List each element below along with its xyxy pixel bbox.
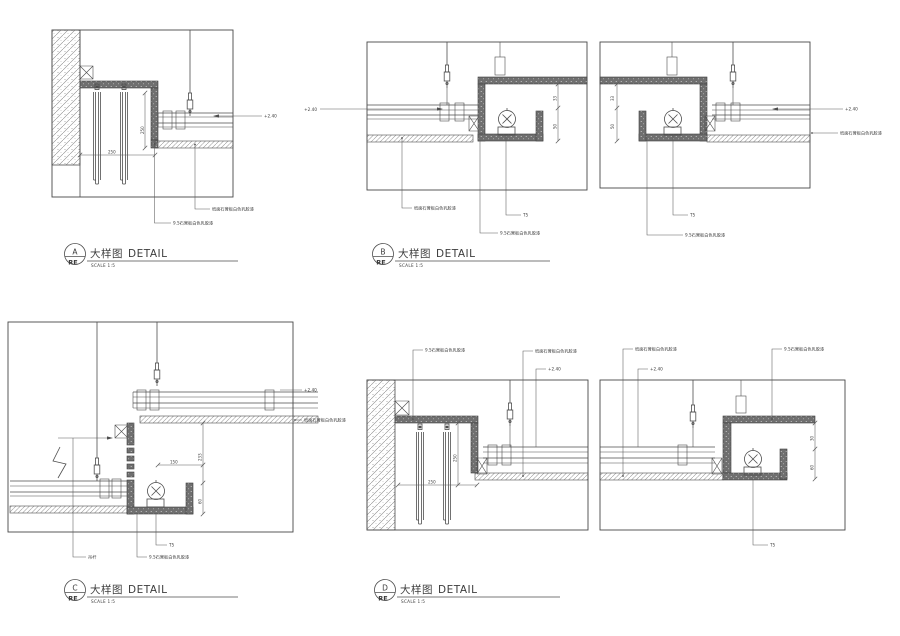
- callout-cove-board: 9.5石膏板白色乳胶漆: [685, 232, 725, 239]
- callout-level: +2.40: [650, 367, 663, 372]
- hanger-turnbuckle: [730, 62, 736, 88]
- curtain-track: [121, 84, 128, 184]
- callout-hanger-rod: 吊杆: [88, 554, 97, 561]
- hanger-turnbuckle: [154, 360, 160, 386]
- rail-clip: [137, 390, 146, 410]
- dim-lower: 60: [810, 464, 815, 470]
- detail-scale: SCALE 1:5: [401, 599, 425, 604]
- callout-level: +2.40: [264, 114, 277, 119]
- dim-upper: 30: [810, 435, 815, 441]
- rail-clip: [440, 103, 449, 121]
- detail-ref-label: RE: [376, 259, 385, 267]
- lamp-symbol: [499, 108, 516, 128]
- detail-title-en: DETAIL: [128, 584, 167, 596]
- callout-flat-board: 纸面石膏板白色乳胶漆: [212, 206, 254, 213]
- detail-ref-label: RE: [378, 595, 387, 603]
- callout-level: +2.40: [304, 107, 317, 112]
- detail-title-en: DETAIL: [436, 248, 475, 260]
- blocking-xbox: [395, 401, 409, 415]
- dim-horizontal: 250: [428, 480, 436, 485]
- leader-arrow: [107, 436, 113, 439]
- detail-title-cn: 大样图: [90, 583, 123, 596]
- callout-lamp: T5: [769, 543, 776, 548]
- rail-clip: [502, 445, 511, 465]
- cove-board: [600, 77, 707, 84]
- detail-title-en: DETAIL: [128, 248, 167, 260]
- detail-b-drawing: 33 50 +2.40 纸面石膏板白色乳胶漆 9.5石膏板白色乳胶漆 T5 33…: [304, 42, 882, 268]
- cove-bracket: [667, 57, 677, 75]
- detail-b-titleblock: B RE 大样图 DETAIL SCALE 1:5: [373, 244, 551, 269]
- cad-detail-sheet: +2.40 250 250 纸面石膏板白色乳胶漆 9.5石膏板白色乳胶漆 A R…: [0, 0, 900, 636]
- rail-clip: [176, 111, 185, 129]
- detail-a-drawing: +2.40 250 250 纸面石膏板白色乳胶漆 9.5石膏板白色乳胶漆 A R…: [52, 30, 277, 268]
- callout-cove-board: 9.5石膏板白色乳胶漆: [784, 346, 824, 353]
- gypsum-board-strip: [155, 141, 233, 148]
- callout-cove-board: 9.5石膏板白色乳胶漆: [500, 230, 540, 237]
- callout-cove-board: 9.5石膏板白色乳胶漆: [149, 554, 189, 561]
- callout-level: +2.40: [304, 388, 317, 393]
- dim-horizontal: 150: [170, 460, 178, 465]
- curtain-track: [417, 424, 424, 524]
- rail-clip: [731, 103, 740, 121]
- hanger-turnbuckle: [94, 455, 100, 481]
- callout-level: +2.40: [548, 367, 561, 372]
- detail-letter: A: [72, 248, 78, 257]
- rail-clip: [678, 445, 687, 465]
- curtain-track: [444, 424, 451, 524]
- break-line: [53, 447, 66, 478]
- detail-d-titleblock: D RE 大样图 DETAIL SCALE 1:5: [375, 580, 561, 605]
- junction-xbox: [469, 116, 479, 131]
- dim-upper: 33: [553, 95, 558, 101]
- callout-flat-board: 纸面石膏板白色乳胶漆: [304, 417, 346, 424]
- rail-clip: [112, 479, 121, 498]
- rail-clip: [265, 390, 274, 410]
- drawing-canvas: +2.40 250 250 纸面石膏板白色乳胶漆 9.5石膏板白色乳胶漆 A R…: [0, 0, 900, 636]
- lamp-symbol: [665, 108, 682, 128]
- dim-vertical: 250: [453, 454, 458, 462]
- gypsum-board-strip: [475, 473, 588, 480]
- wall-hatch: [52, 30, 80, 165]
- detail-scale: SCALE 1:5: [399, 263, 423, 268]
- rail-clip: [716, 103, 725, 121]
- detail-ref-label: RE: [68, 595, 77, 603]
- detail-d-drawing: 250 250 9.5石膏板白色乳胶漆 纸面石膏板白色乳胶漆 +2.40: [367, 346, 845, 605]
- detail-scale: SCALE 1:5: [91, 263, 115, 268]
- gypsum-board-strip: [707, 135, 810, 142]
- callout-lamp: T5: [522, 213, 529, 218]
- cove-board: [478, 77, 587, 84]
- junction-xbox: [477, 458, 487, 474]
- curtain-box-board: [80, 81, 158, 88]
- detail-scale: SCALE 1:5: [91, 599, 115, 604]
- detail-a-titleblock: A RE 大样图 DETAIL SCALE 1:5: [65, 244, 239, 269]
- detail-c-titleblock: C RE 大样图 DETAIL SCALE 1:5: [65, 580, 239, 605]
- detail-letter: B: [380, 248, 385, 257]
- detail-ref-label: RE: [68, 259, 77, 267]
- hanger-turnbuckle: [444, 62, 450, 88]
- gypsum-board-strip: [367, 135, 473, 142]
- callout-flat-board: 纸面石膏板白色乳胶漆: [840, 130, 882, 137]
- detail-title-cn: 大样图: [398, 247, 431, 260]
- rail-clip: [150, 390, 159, 410]
- callout-cove-board: 9.5石膏板白色乳胶漆: [425, 347, 465, 354]
- curtain-box-board: [395, 416, 478, 423]
- cove-board: [723, 416, 815, 423]
- gypsum-board-strip: [140, 416, 318, 423]
- cove-bracket: [495, 57, 505, 75]
- gypsum-board-strip: [10, 506, 127, 513]
- callout-flat-board: 纸面石膏板白色乳胶漆: [414, 205, 456, 212]
- lamp-base: [147, 499, 164, 507]
- dim-lower: 60: [198, 498, 203, 504]
- callout-cove-board: 9.5石膏板白色乳胶漆: [173, 220, 213, 227]
- callout-flat-board: 纸面石膏板白色乳胶漆: [635, 346, 677, 353]
- detail-title-en: DETAIL: [438, 584, 477, 596]
- lamp-symbol: [148, 480, 165, 500]
- dim-vertical: 250: [140, 126, 145, 134]
- dim-upper: 233: [198, 453, 203, 461]
- detail-title-cn: 大样图: [90, 247, 123, 260]
- callout-lamp: T5: [689, 213, 696, 218]
- hanger-turnbuckle: [507, 400, 513, 426]
- callout-lamp: T5: [168, 543, 175, 548]
- junction-xbox: [712, 458, 722, 474]
- rail-clip: [100, 479, 109, 498]
- dim-lower: 50: [553, 123, 558, 129]
- blocking-xbox: [80, 66, 93, 79]
- rail-clip: [455, 103, 464, 121]
- callout-level: +2.40: [845, 107, 858, 112]
- detail-letter: C: [72, 584, 77, 593]
- hanger-turnbuckle: [187, 90, 193, 116]
- wall-hatch: [367, 380, 395, 530]
- curtain-track: [94, 84, 101, 184]
- detail-c-drawing: 233 60 150 吊杆 9.5石膏板白色乳胶漆 T5 +2.40 纸面石膏板…: [8, 322, 346, 604]
- dim-horizontal: 250: [108, 150, 116, 155]
- cove-bracket: [736, 396, 746, 413]
- detail-title-cn: 大样图: [400, 583, 433, 596]
- gypsum-board-strip: [600, 473, 723, 480]
- blocking-xbox: [115, 425, 128, 438]
- callout-flat-board: 纸面石膏板白色乳胶漆: [535, 348, 577, 355]
- hanger-turnbuckle: [690, 402, 696, 428]
- cove-board: [127, 507, 193, 514]
- lamp-symbol: [745, 448, 762, 468]
- dim-upper: 33: [610, 95, 615, 101]
- rail-clip: [163, 111, 172, 129]
- detail-letter: D: [382, 584, 388, 593]
- rail-clip: [488, 445, 497, 465]
- dim-lower: 50: [610, 123, 615, 129]
